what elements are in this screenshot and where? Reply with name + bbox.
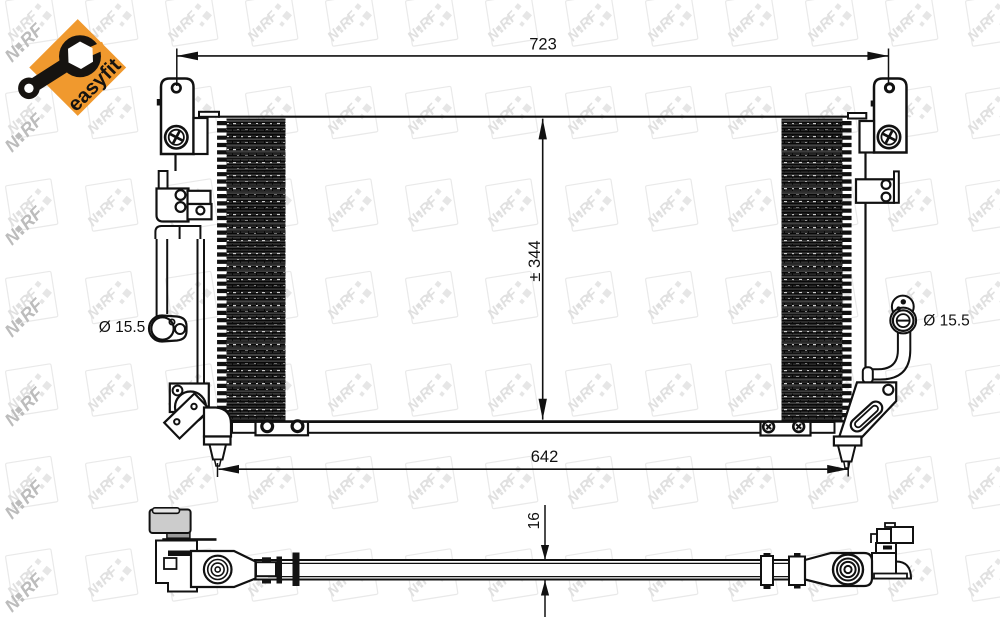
svg-text:723: 723 (529, 36, 557, 54)
svg-text:Ø 15.5: Ø 15.5 (99, 319, 146, 336)
svg-text:Ø 15.5: Ø 15.5 (923, 313, 970, 330)
svg-text:± 344: ± 344 (526, 240, 544, 281)
svg-text:642: 642 (531, 448, 559, 466)
svg-text:16: 16 (526, 512, 543, 529)
